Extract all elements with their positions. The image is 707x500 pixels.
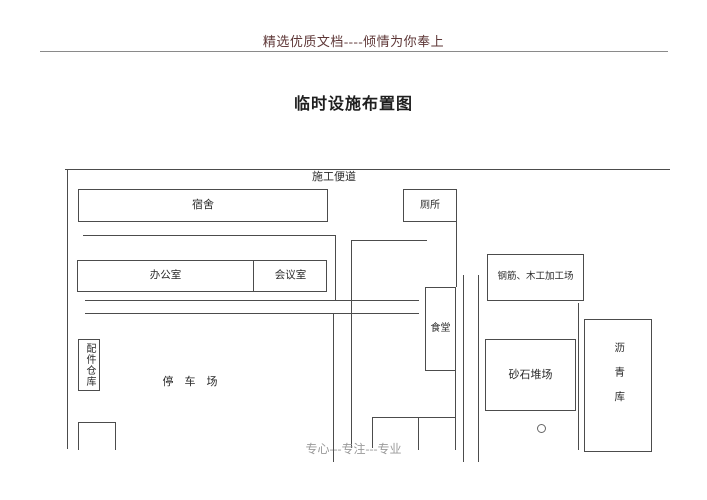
parts-warehouse-label: 配件仓库 [84,343,94,387]
canteen-label: 食堂 [431,324,451,334]
road-top-line [65,169,670,170]
rebar-wood-workshop-label: 钢筋、木工加工场 [497,273,573,283]
parking-lot-label: 停 车 场 [158,377,222,388]
office-cell: 办公室 [78,261,253,291]
toilet-canteen-line [456,222,457,287]
office-block-top-line [83,235,335,236]
document-page: 精选优质文档----倾情为你奉上 临时设施布置图 施工便道 宿舍 厕所 办公室 … [0,0,707,500]
well-circle-marker [537,424,546,433]
below-canteen-top-line [372,417,455,418]
toilet-box: 厕所 [403,189,457,222]
right-road-line-left [463,275,464,462]
meeting-room-label: 会议室 [275,271,307,282]
rebar-wood-workshop-box: 钢筋、木工加工场 [487,254,584,301]
page-title: 临时设施布置图 [0,90,707,114]
office-meeting-box: 办公室 会议室 [77,260,327,292]
left-boundary-line [67,169,68,449]
dormitory-box: 宿舍 [78,189,328,222]
right-road-line-right [478,275,479,462]
meeting-room-cell: 会议室 [253,261,328,291]
header-divider-line [40,51,668,52]
dormitory-label: 宿舍 [192,200,214,211]
parts-warehouse-box: 配件仓库 [78,339,100,391]
toilet-label: 厕所 [420,201,440,211]
canteen-lower-line [455,371,456,450]
yard-right-line [578,303,579,450]
office-block-right-line [335,235,336,300]
asphalt-storage-box: 沥青库 [584,319,652,452]
road-lower-line-upper [85,300,419,301]
road-lower-line-lower [85,313,419,314]
sand-gravel-yard-box: 砂石堆场 [485,339,576,411]
office-label: 办公室 [150,271,182,282]
canteen-box: 食堂 [425,287,456,371]
footer-watermark: 专心---专注---专业 [0,440,707,457]
center-road-right-line [351,240,352,448]
construction-road-label: 施工便道 [312,172,356,183]
header-watermark: 精选优质文档----倾情为你奉上 [0,31,707,50]
asphalt-storage-label: 沥青库 [613,342,624,416]
road-connector-line [351,240,427,241]
sand-gravel-yard-label: 砂石堆场 [509,370,553,381]
